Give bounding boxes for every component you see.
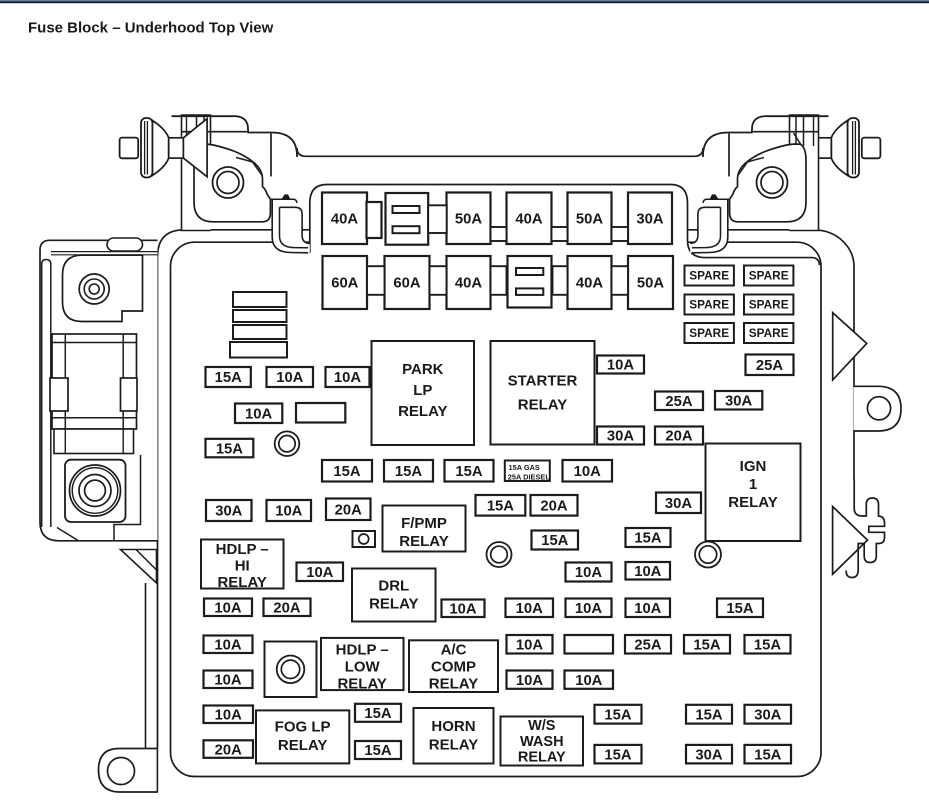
svg-text:20A: 20A <box>273 601 300 617</box>
svg-text:LP: LP <box>413 382 432 399</box>
svg-text:10A: 10A <box>574 464 601 480</box>
svg-text:RELAY: RELAY <box>337 676 386 693</box>
svg-text:40A: 40A <box>576 276 603 292</box>
svg-text:15A: 15A <box>455 464 482 480</box>
svg-text:30A: 30A <box>754 707 781 723</box>
svg-text:60A: 60A <box>331 276 358 292</box>
svg-text:30A: 30A <box>607 429 634 445</box>
svg-text:HI: HI <box>235 558 250 575</box>
svg-text:IGN: IGN <box>740 458 767 475</box>
svg-text:30A: 30A <box>636 212 663 228</box>
svg-text:25A: 25A <box>756 358 783 374</box>
svg-text:10A: 10A <box>575 565 602 581</box>
svg-text:15A GAS: 15A GAS <box>509 463 540 472</box>
svg-text:SPARE: SPARE <box>749 298 789 312</box>
svg-text:RELAY: RELAY <box>399 533 448 550</box>
svg-text:RELAY: RELAY <box>369 596 418 613</box>
svg-text:10A: 10A <box>516 673 543 689</box>
svg-text:30A: 30A <box>725 394 752 410</box>
svg-text:FOG LP: FOG LP <box>275 719 331 736</box>
svg-text:40A: 40A <box>455 276 482 292</box>
svg-text:SPARE: SPARE <box>689 269 729 283</box>
svg-text:10A: 10A <box>575 673 602 689</box>
svg-text:25A: 25A <box>665 394 692 410</box>
svg-text:A/C: A/C <box>441 642 467 659</box>
svg-text:15A: 15A <box>216 441 243 457</box>
svg-text:RELAY: RELAY <box>278 737 327 754</box>
svg-text:15A: 15A <box>693 638 720 654</box>
svg-text:15A: 15A <box>634 531 661 547</box>
svg-text:HORN: HORN <box>431 718 475 735</box>
svg-text:RELAY: RELAY <box>429 737 478 754</box>
svg-text:SPARE: SPARE <box>689 326 729 340</box>
svg-text:20A: 20A <box>665 429 692 445</box>
svg-text:15A: 15A <box>695 707 722 723</box>
svg-text:W/S: W/S <box>528 718 556 734</box>
svg-text:10A: 10A <box>634 601 661 617</box>
svg-text:15A: 15A <box>395 464 422 480</box>
svg-text:LOW: LOW <box>345 659 381 676</box>
svg-text:15A: 15A <box>541 533 568 549</box>
svg-text:40A: 40A <box>515 212 542 228</box>
svg-text:HDLP –: HDLP – <box>336 642 389 659</box>
svg-text:15A: 15A <box>754 747 781 763</box>
svg-text:10A: 10A <box>214 638 241 654</box>
svg-text:10A: 10A <box>306 565 333 581</box>
svg-text:10A: 10A <box>634 564 661 580</box>
svg-text:10A: 10A <box>275 504 302 520</box>
svg-text:DRL: DRL <box>378 578 409 595</box>
svg-text:10A: 10A <box>575 601 602 617</box>
svg-text:10A: 10A <box>449 602 476 618</box>
svg-text:25A DIESEL: 25A DIESEL <box>508 472 551 481</box>
svg-text:10A: 10A <box>607 358 634 374</box>
svg-text:PARK: PARK <box>402 361 444 378</box>
svg-text:RELAY: RELAY <box>429 676 478 693</box>
svg-text:10A: 10A <box>245 407 272 423</box>
svg-text:50A: 50A <box>576 212 603 228</box>
svg-text:10A: 10A <box>516 601 543 617</box>
svg-text:30A: 30A <box>665 496 692 512</box>
svg-text:SPARE: SPARE <box>749 326 789 340</box>
svg-text:15A: 15A <box>364 706 391 722</box>
svg-text:15A: 15A <box>754 638 781 654</box>
svg-text:1: 1 <box>749 476 757 493</box>
svg-text:30A: 30A <box>695 747 722 763</box>
svg-text:15A: 15A <box>487 499 514 515</box>
svg-text:F/PMP: F/PMP <box>401 515 447 532</box>
svg-text:25A: 25A <box>634 638 661 654</box>
svg-text:10A: 10A <box>214 673 241 689</box>
svg-text:HDLP –: HDLP – <box>216 541 269 558</box>
svg-text:RELAY: RELAY <box>217 574 266 591</box>
svg-text:15A: 15A <box>726 601 753 617</box>
svg-text:15A: 15A <box>604 747 631 763</box>
svg-text:10A: 10A <box>214 601 241 617</box>
svg-text:20A: 20A <box>540 499 567 515</box>
svg-text:15A: 15A <box>364 743 391 759</box>
svg-text:RELAY: RELAY <box>728 494 777 511</box>
svg-text:COMP: COMP <box>431 659 476 676</box>
svg-text:50A: 50A <box>637 276 664 292</box>
svg-text:15A: 15A <box>333 464 360 480</box>
svg-text:Fuse Block – Underhood Top Vie: Fuse Block – Underhood Top View <box>28 20 274 37</box>
svg-text:30A: 30A <box>215 504 242 520</box>
svg-text:10A: 10A <box>215 708 242 724</box>
svg-text:RELAY: RELAY <box>518 750 566 766</box>
svg-text:60A: 60A <box>393 276 420 292</box>
svg-text:10A: 10A <box>516 638 543 654</box>
svg-text:10A: 10A <box>334 370 361 386</box>
svg-text:SPARE: SPARE <box>749 269 789 283</box>
svg-text:20A: 20A <box>335 503 362 519</box>
svg-text:15A: 15A <box>604 707 631 723</box>
svg-text:WASH: WASH <box>520 734 564 750</box>
svg-text:20A: 20A <box>215 742 242 758</box>
svg-text:RELAY: RELAY <box>518 397 567 414</box>
svg-text:50A: 50A <box>455 212 482 228</box>
svg-text:15A: 15A <box>215 370 242 386</box>
svg-text:SPARE: SPARE <box>689 298 729 312</box>
svg-text:10A: 10A <box>276 370 303 386</box>
svg-text:40A: 40A <box>331 212 358 228</box>
svg-text:RELAY: RELAY <box>398 403 447 420</box>
svg-text:STARTER: STARTER <box>508 373 578 390</box>
